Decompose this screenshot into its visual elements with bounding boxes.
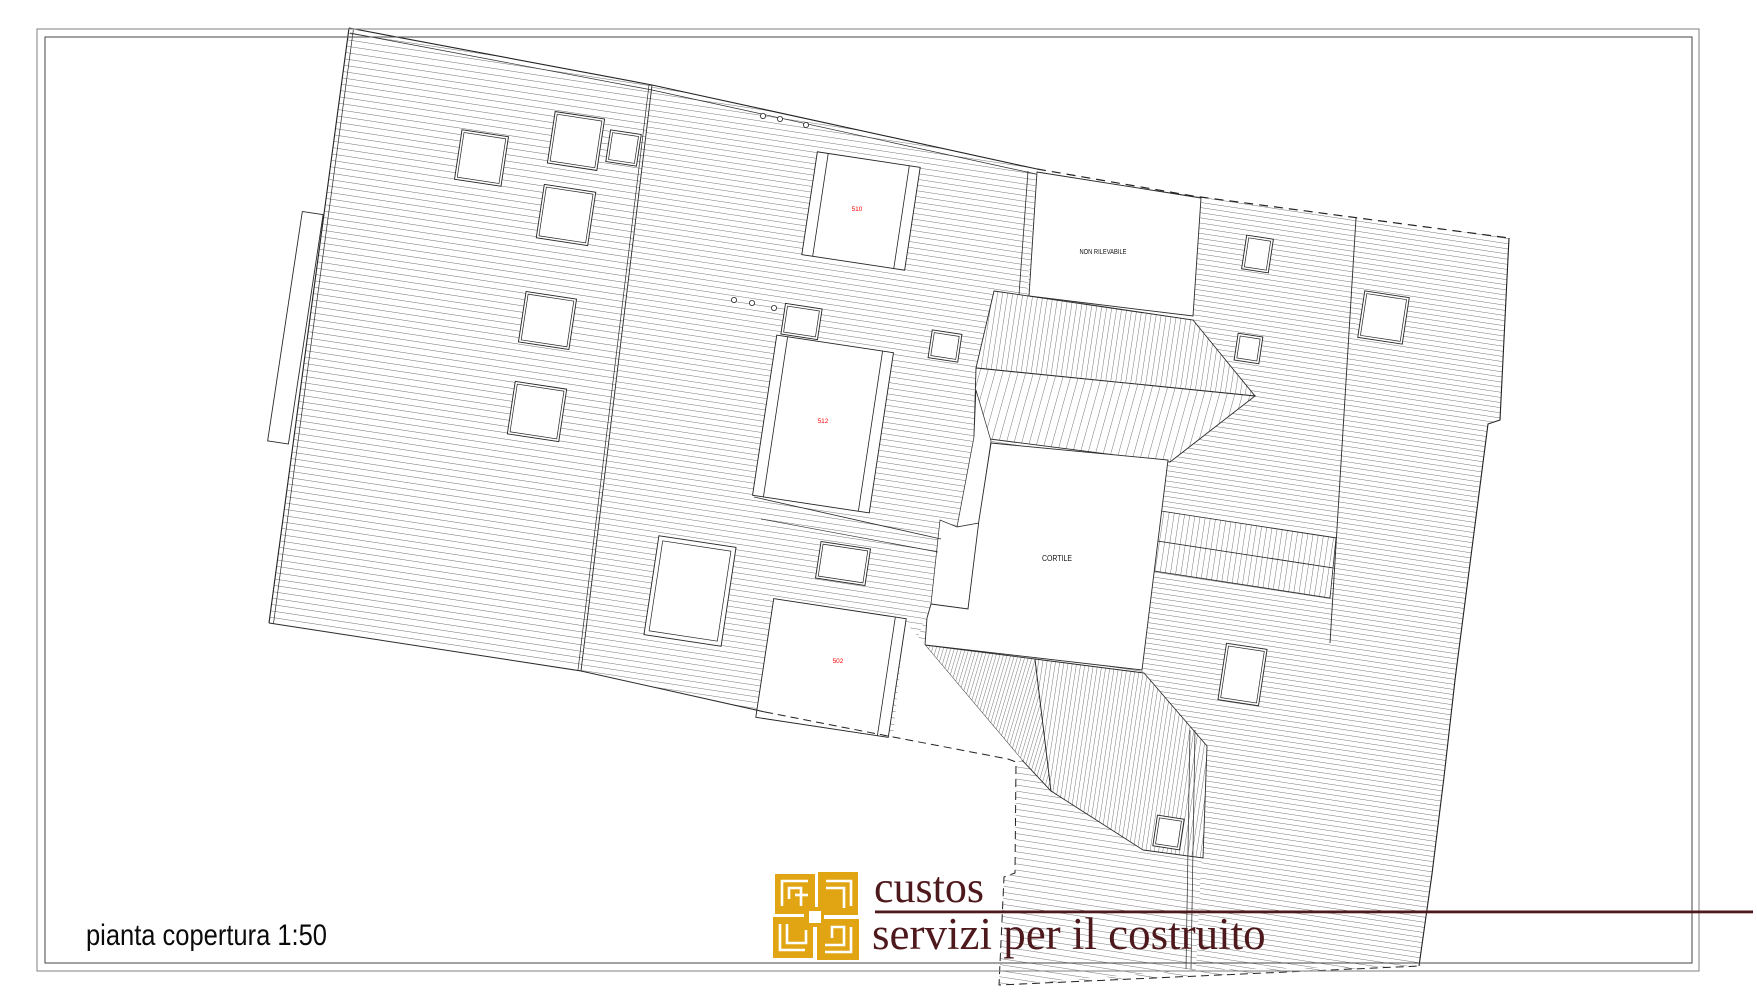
svg-text:NON RILEVABILE: NON RILEVABILE (1080, 247, 1127, 256)
svg-text:CORTILE: CORTILE (1042, 554, 1072, 563)
svg-text:servizi per il costruito: servizi per il costruito (872, 909, 1266, 959)
svg-text:512: 512 (818, 418, 829, 425)
svg-text:502: 502 (833, 658, 844, 665)
svg-text:510: 510 (852, 206, 863, 213)
svg-text:custos: custos (874, 863, 984, 912)
svg-text:pianta copertura 1:50: pianta copertura 1:50 (86, 919, 327, 952)
